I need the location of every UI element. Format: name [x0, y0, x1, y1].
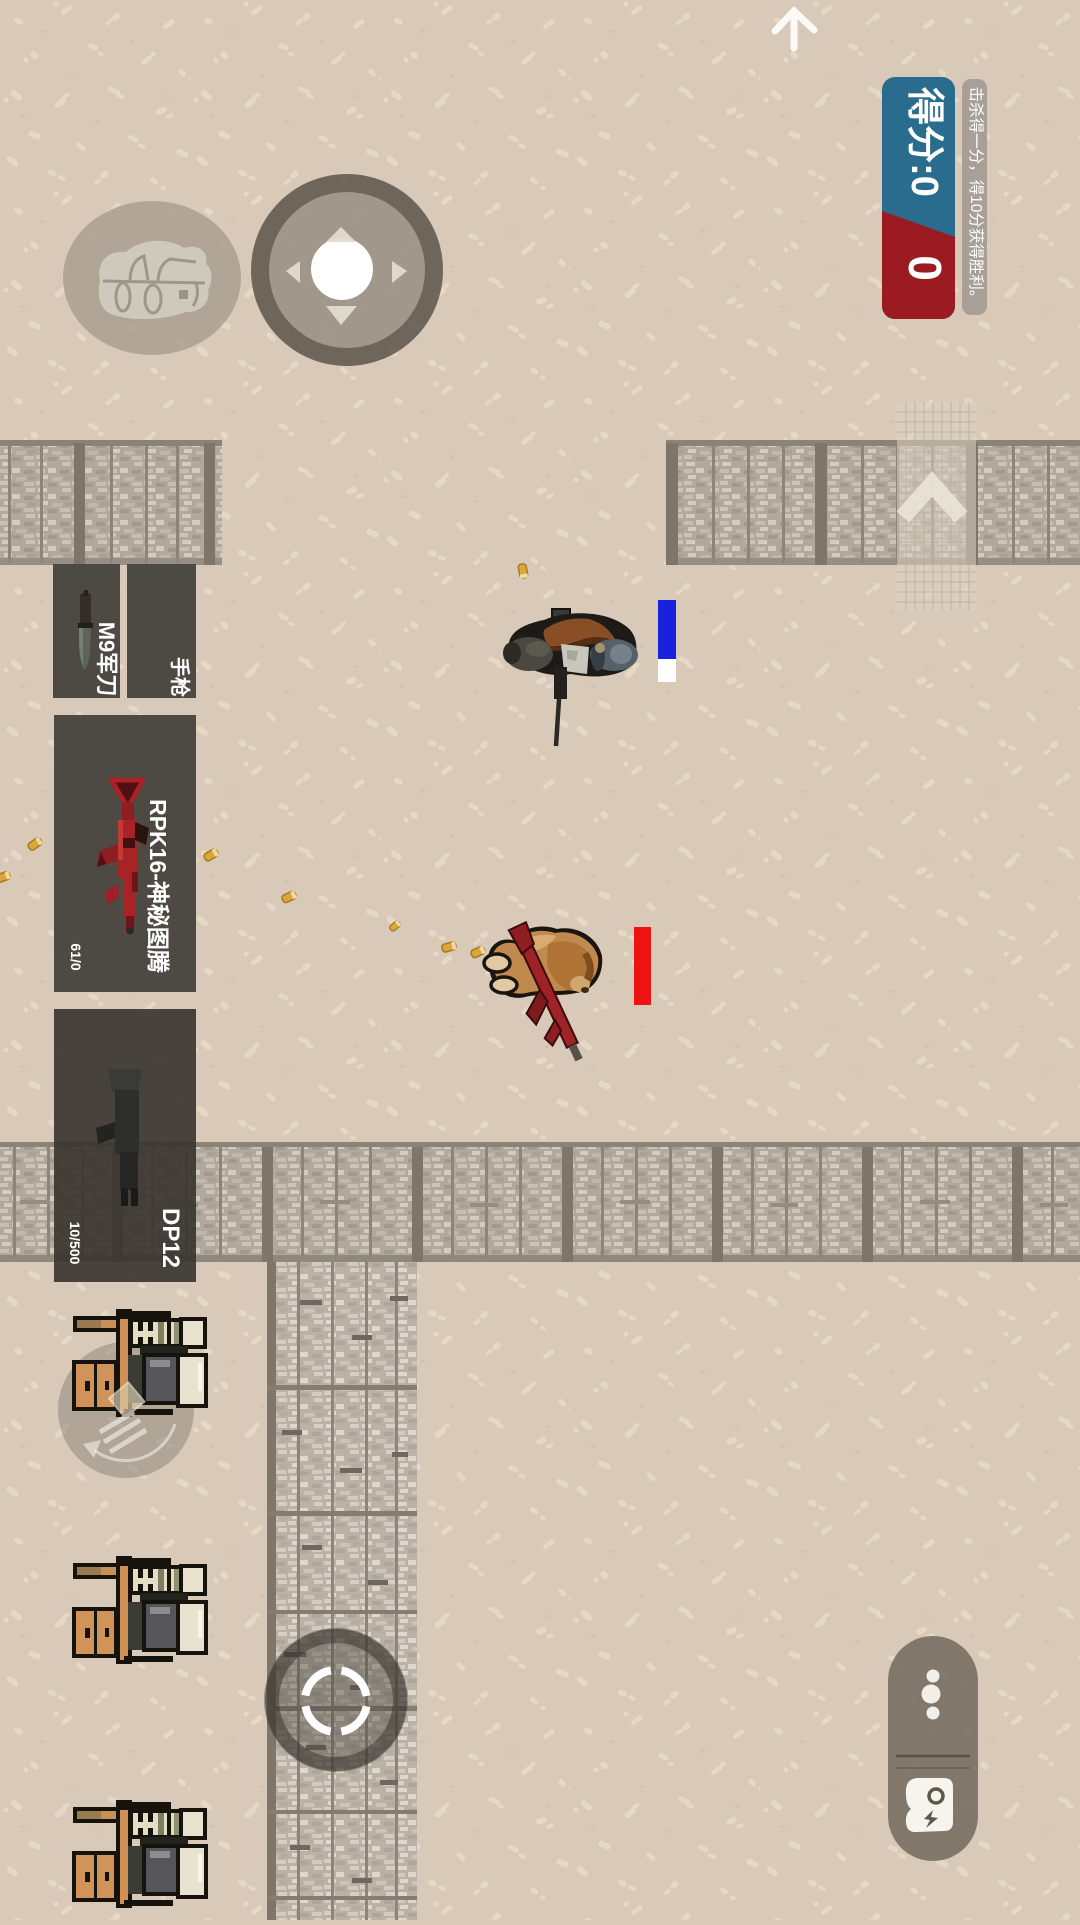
svg-text:M9军刀: M9军刀	[94, 622, 119, 697]
svg-text:10/500: 10/500	[67, 1222, 83, 1265]
svg-text:击杀得一分，得10分获得胜利。: 击杀得一分，得10分获得胜利。	[967, 87, 985, 306]
svg-text:手枪: 手枪	[168, 657, 192, 697]
svg-text:得分:0: 得分:0	[903, 87, 945, 197]
svg-text:0: 0	[899, 255, 951, 281]
svg-text:DP12: DP12	[157, 1208, 184, 1268]
svg-text:61/0: 61/0	[68, 943, 84, 970]
svg-text:RPK16-神秘图腾: RPK16-神秘图腾	[145, 799, 171, 974]
